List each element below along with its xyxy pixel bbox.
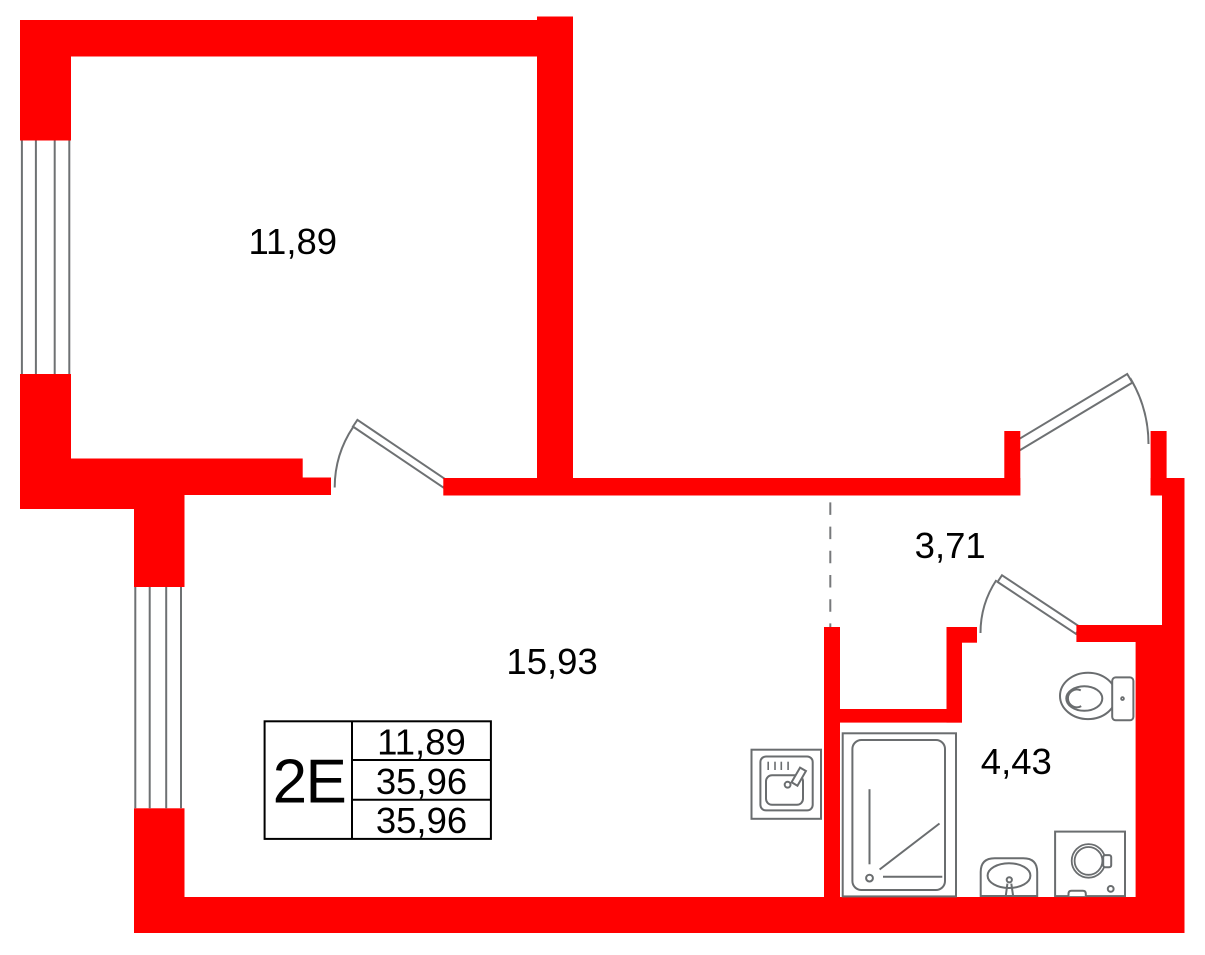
svg-text:3,71: 3,71: [915, 525, 986, 566]
svg-text:2E: 2E: [273, 748, 346, 817]
svg-text:35,96: 35,96: [376, 761, 467, 802]
svg-text:4,43: 4,43: [981, 741, 1052, 782]
svg-text:11,89: 11,89: [248, 221, 337, 262]
svg-text:35,96: 35,96: [376, 800, 467, 841]
svg-text:11,89: 11,89: [377, 722, 466, 763]
svg-text:15,93: 15,93: [506, 641, 597, 682]
